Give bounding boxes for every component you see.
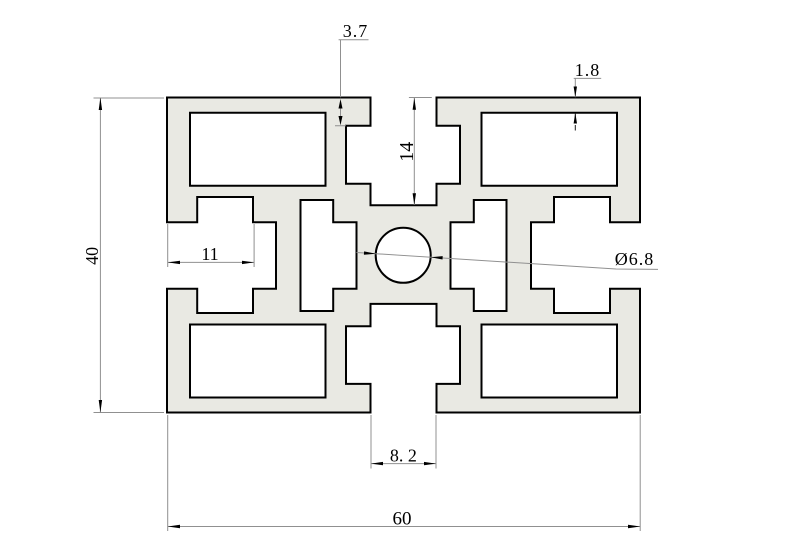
- svg-text:14: 14: [396, 142, 418, 162]
- svg-text:1.8: 1.8: [575, 60, 601, 80]
- svg-text:Ø6.8: Ø6.8: [615, 249, 655, 269]
- svg-text:40: 40: [82, 247, 102, 265]
- svg-text:3.7: 3.7: [343, 21, 369, 41]
- svg-text:8. 2: 8. 2: [390, 446, 417, 466]
- svg-text:11: 11: [201, 244, 218, 264]
- svg-text:60: 60: [393, 508, 412, 529]
